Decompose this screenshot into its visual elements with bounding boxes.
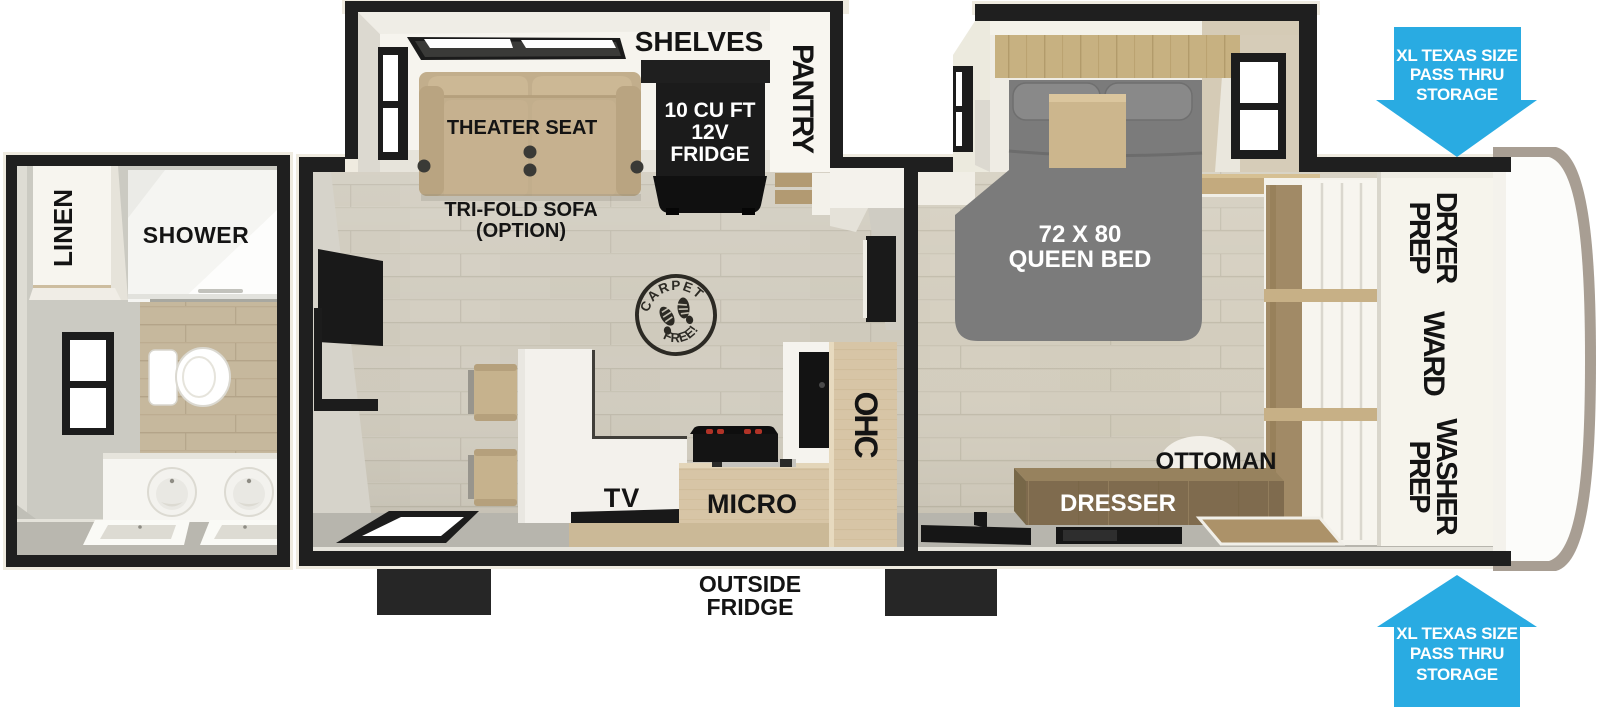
svg-text:PREP: PREP	[1403, 202, 1435, 275]
svg-text:10 CU FT: 10 CU FT	[664, 99, 755, 122]
svg-text:STORAGE: STORAGE	[1416, 665, 1498, 684]
svg-text:12V: 12V	[691, 121, 728, 144]
svg-text:TRI-FOLD SOFA: TRI-FOLD SOFA	[444, 199, 597, 221]
svg-text:WARD: WARD	[1417, 311, 1450, 396]
svg-text:FRIDGE: FRIDGE	[707, 594, 794, 620]
svg-text:QUEEN BED: QUEEN BED	[1009, 246, 1152, 273]
svg-text:STORAGE: STORAGE	[1416, 85, 1498, 104]
svg-text:PANTRY: PANTRY	[786, 44, 819, 154]
svg-text:72 X 80: 72 X 80	[1039, 221, 1122, 248]
svg-text:PASS THRU: PASS THRU	[1410, 65, 1504, 84]
svg-text:DRESSER: DRESSER	[1060, 490, 1176, 517]
svg-text:MICRO: MICRO	[707, 489, 797, 519]
svg-text:PREP: PREP	[1403, 441, 1435, 514]
svg-text:SHOWER: SHOWER	[143, 222, 250, 248]
svg-text:PASS THRU: PASS THRU	[1410, 644, 1504, 663]
svg-text:(OPTION): (OPTION)	[476, 220, 566, 242]
svg-text:SHELVES: SHELVES	[635, 26, 764, 57]
svg-text:FRIDGE: FRIDGE	[670, 143, 749, 166]
svg-text:LINEN: LINEN	[48, 189, 78, 267]
svg-text:XL TEXAS SIZE: XL TEXAS SIZE	[1396, 46, 1517, 65]
svg-text:OTTOMAN: OTTOMAN	[1156, 448, 1277, 475]
svg-text:OHC: OHC	[848, 391, 884, 458]
svg-text:TV: TV	[604, 483, 641, 513]
svg-text:THEATER SEAT: THEATER SEAT	[447, 117, 597, 139]
svg-text:XL TEXAS SIZE: XL TEXAS SIZE	[1396, 624, 1517, 643]
